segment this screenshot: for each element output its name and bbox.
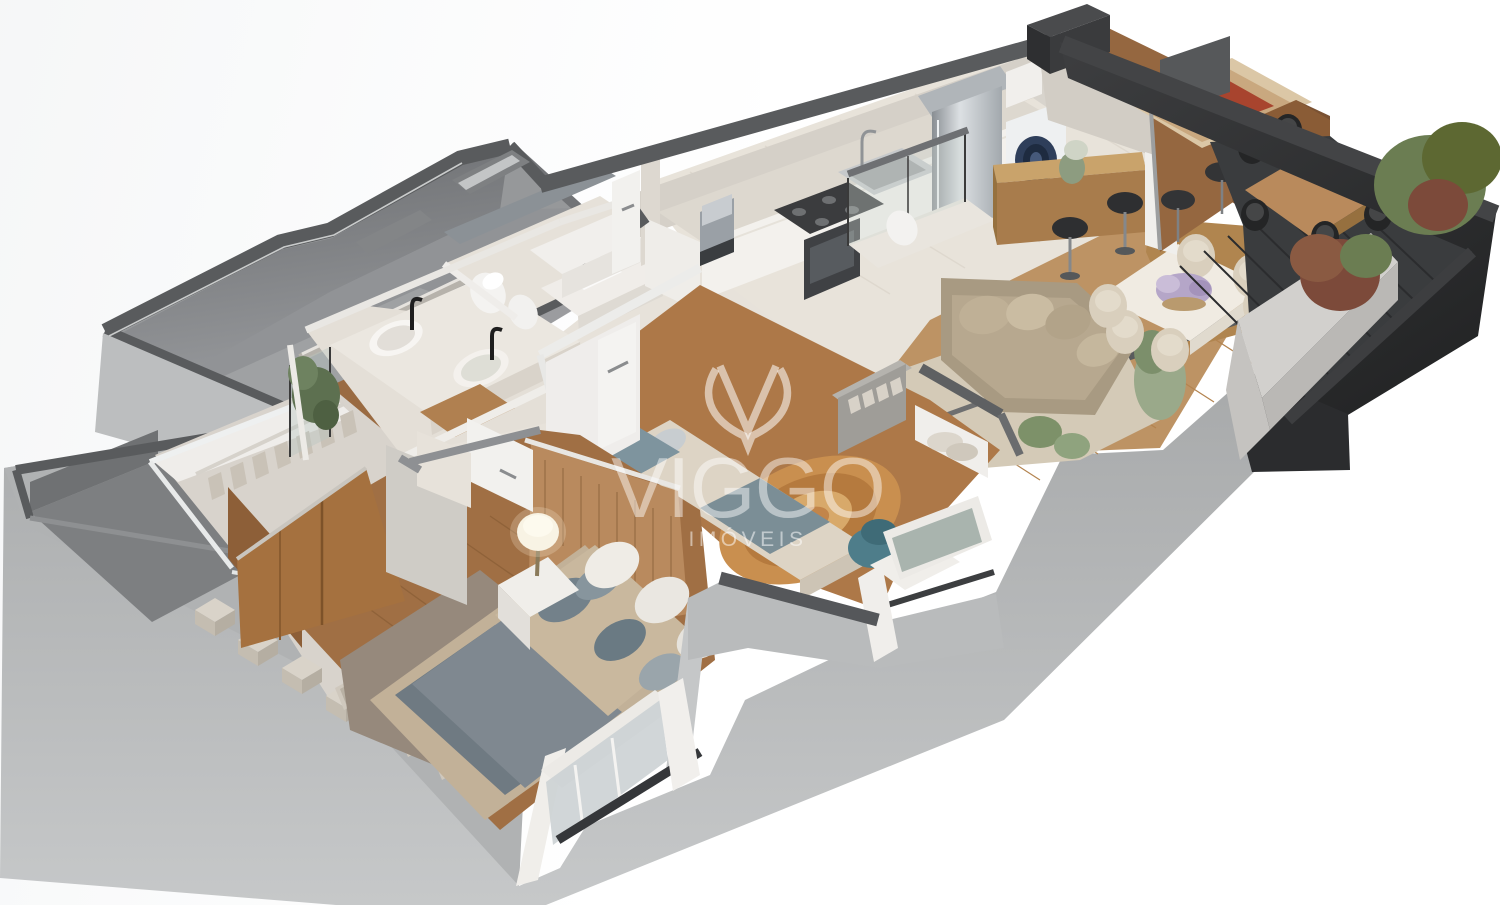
svg-text:IMÓVEIS: IMÓVEIS [688, 528, 807, 551]
svg-text:VIGGO: VIGGO [611, 441, 885, 536]
